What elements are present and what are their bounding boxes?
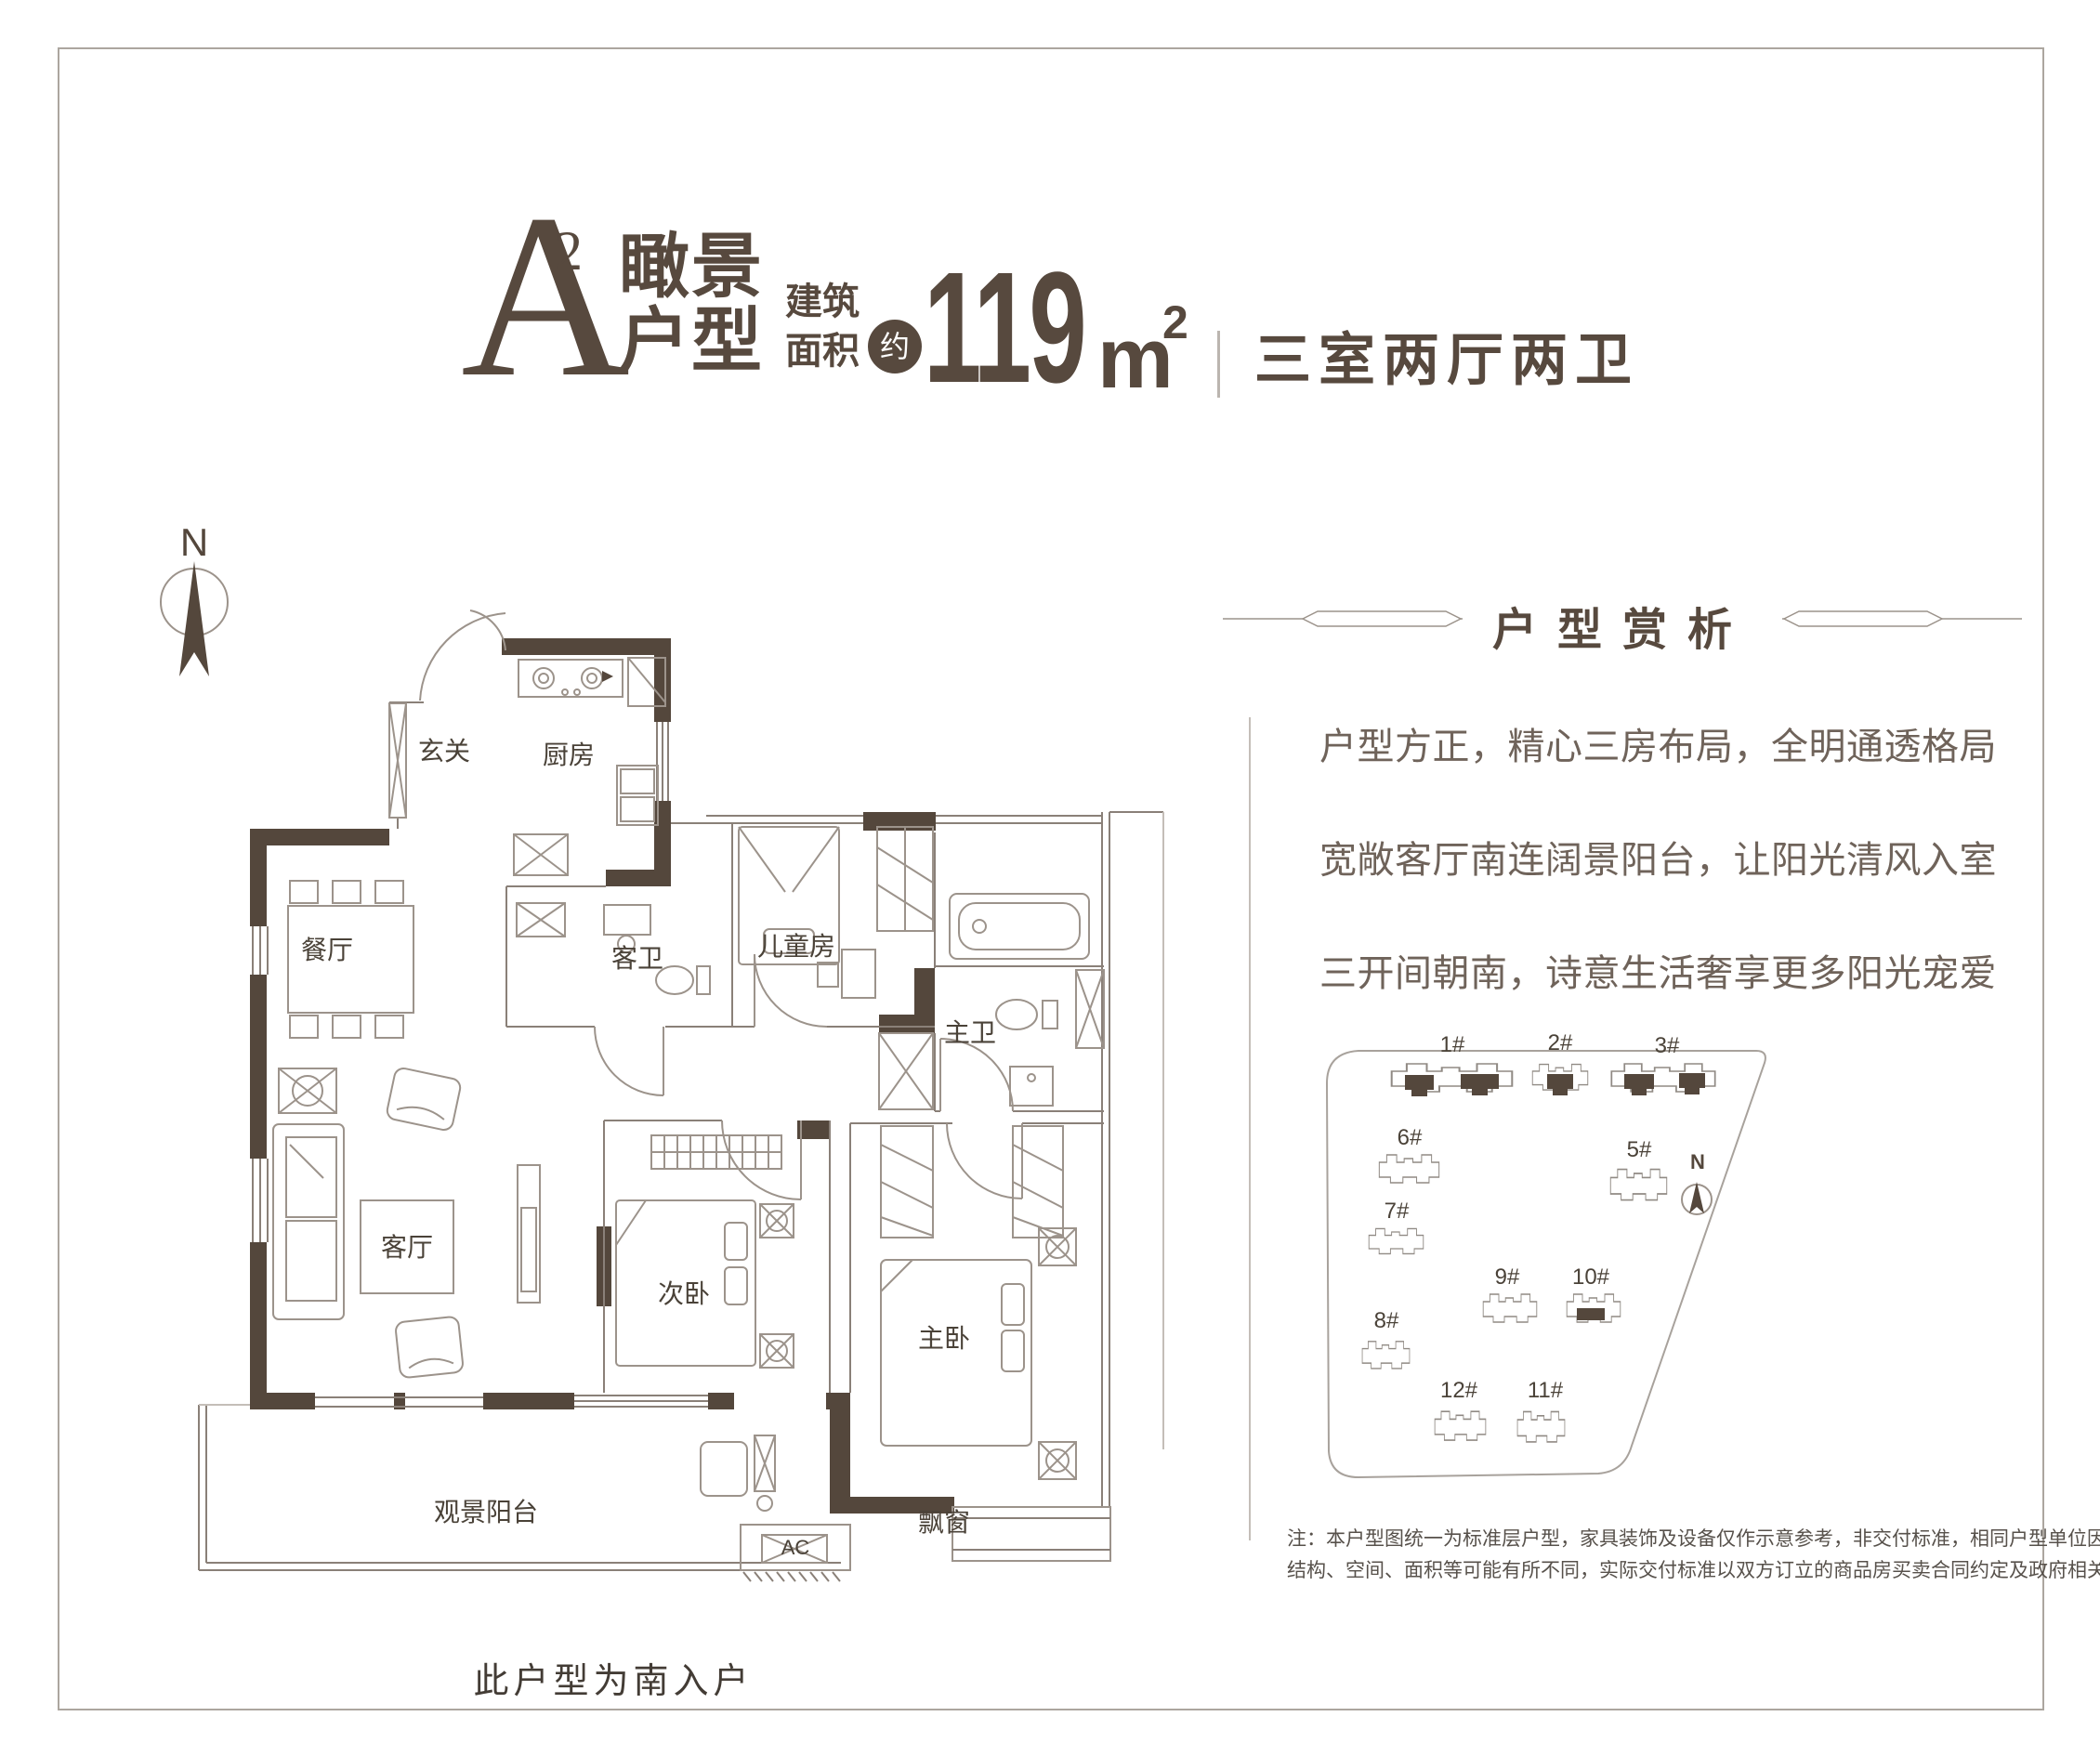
- room-label-master-bath: 主卫: [944, 1018, 996, 1047]
- north-compass-icon: N: [161, 520, 228, 676]
- living-room-furniture: [273, 1067, 540, 1378]
- unit-name-line2: 户型: [619, 305, 764, 379]
- approx-badge: 约: [868, 320, 922, 373]
- room-labels: 玄关 厨房 餐厅 客卫 儿童房 主卫 客厅 次卧 主卧 观景阳台 飘窗 AC: [301, 737, 996, 1559]
- building-label-6: 6#: [1398, 1125, 1423, 1150]
- building-label-2: 2#: [1548, 1030, 1573, 1055]
- highlighted-units: [1405, 1073, 1705, 1320]
- unit-type-superscript: 2: [555, 223, 583, 279]
- site-north-compass-icon: N: [1682, 1150, 1712, 1214]
- site-plan: 1# 2# 3# 6# 5# 7# 9# 10# 8# 12# 11# N: [1327, 1030, 1765, 1477]
- room-label-master-bedroom: 主卧: [918, 1324, 970, 1353]
- balcony-sink: [701, 1435, 775, 1511]
- building-label-3: 3#: [1655, 1033, 1680, 1058]
- room-label-bay-window: 飘窗: [918, 1508, 970, 1537]
- area-label-line1: 建筑: [785, 278, 860, 327]
- unit-type-letter: A: [461, 178, 630, 413]
- poster-root: N: [0, 0, 2100, 1756]
- room-label-ac: AC: [781, 1536, 810, 1559]
- area-label-line2: 面积: [785, 327, 860, 376]
- second-bedroom-furniture: [616, 1135, 794, 1368]
- children-room-furniture: [739, 827, 933, 998]
- walls-solid: [250, 638, 954, 1514]
- room-label-second-bedroom: 次卧: [658, 1279, 710, 1308]
- building-label-12: 12#: [1440, 1378, 1478, 1403]
- unit-type-name: 瞰景 户型: [619, 230, 764, 379]
- building-label-9: 9#: [1495, 1265, 1520, 1290]
- analysis-title: 户型赏析: [1409, 593, 1836, 658]
- site-north-label: N: [1690, 1150, 1705, 1173]
- balcony-structure: [199, 1405, 1110, 1581]
- floor-plan: N: [161, 520, 1163, 1581]
- area-label: 建筑 面积: [785, 278, 860, 376]
- room-label-entry: 玄关: [418, 737, 470, 766]
- room-label-living: 客厅: [381, 1233, 433, 1262]
- building-label-5: 5#: [1627, 1137, 1652, 1162]
- room-label-dining: 餐厅: [301, 936, 353, 964]
- analysis-paragraph-3: 三开间朝南，诗意生活奢享更多阳光宠爱: [1319, 951, 1970, 996]
- disclaimer-line1: 注：本户型图统一为标准层户型，家具装饰及设备仅作示意参考，非交付标准，相同户型单…: [1287, 1524, 2021, 1555]
- building-label-8: 8#: [1374, 1308, 1399, 1333]
- area-unit-superscript: 2: [1162, 299, 1188, 346]
- north-label: N: [180, 520, 208, 564]
- layout-description: 三室两厅两卫: [1254, 329, 1639, 391]
- building-label-10: 10#: [1572, 1265, 1610, 1290]
- doors: [595, 954, 1022, 1199]
- room-label-guest-bath: 客卫: [611, 944, 663, 973]
- master-bedroom-furniture: [881, 1126, 1076, 1479]
- room-label-balcony: 观景阳台: [434, 1498, 538, 1527]
- analysis-paragraph-2: 宽敞客厅南连阔景阳台，让阳光清风入室: [1319, 838, 1970, 883]
- area-value: 119: [924, 249, 1084, 407]
- building-label-11: 11#: [1528, 1378, 1564, 1403]
- unit-name-line1: 瞰景: [619, 230, 764, 305]
- disclaimer-line2: 结构、空间、面积等可能有所不同，实际交付标准以双方订立的商品房买卖合同约定及政府…: [1287, 1555, 2021, 1587]
- orientation-caption: 此户型为南入户: [372, 1652, 855, 1703]
- master-bath-fixtures: [950, 894, 1104, 1106]
- duct-shaft: [879, 1033, 933, 1109]
- building-label-7: 7#: [1385, 1199, 1410, 1224]
- room-label-children-room: 儿童房: [757, 932, 835, 961]
- building-label-1: 1#: [1440, 1032, 1465, 1057]
- analysis-paragraph-1: 户型方正，精心三房布局，全明通透格局: [1319, 725, 1970, 769]
- title-divider: [1217, 331, 1220, 398]
- entry-door-arc: [420, 610, 505, 701]
- room-label-kitchen: 厨房: [543, 740, 595, 769]
